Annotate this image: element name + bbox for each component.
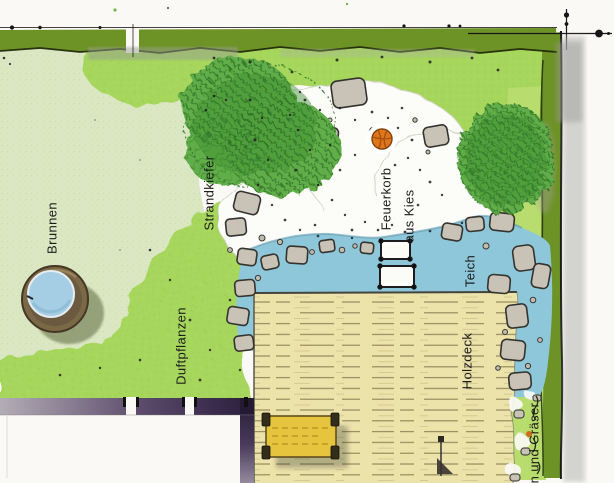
label-feuerkorb: Feuerkorb [379, 168, 394, 231]
corner-shadow [556, 42, 582, 122]
tree-right [458, 103, 554, 213]
label-holzdeck: Holzdeck [460, 333, 475, 390]
garden-plan: Brunnen Strandkiefer Feuerkorb aus Kies … [0, 0, 614, 483]
label-strandkiefer: Strandkiefer [202, 156, 217, 231]
label-graeser: n und Gräser [527, 403, 542, 483]
label-teich: Teich [463, 255, 478, 287]
label-aus-kies: aus Kies [402, 189, 417, 242]
wall-opening [185, 397, 194, 416]
plan-drawing [0, 0, 614, 483]
label-duftpflanzen: Duftpflanzen [174, 307, 189, 385]
fire-basket [369, 126, 395, 152]
wall-opening [126, 397, 136, 416]
label-brunnen: Brunnen [45, 202, 60, 254]
